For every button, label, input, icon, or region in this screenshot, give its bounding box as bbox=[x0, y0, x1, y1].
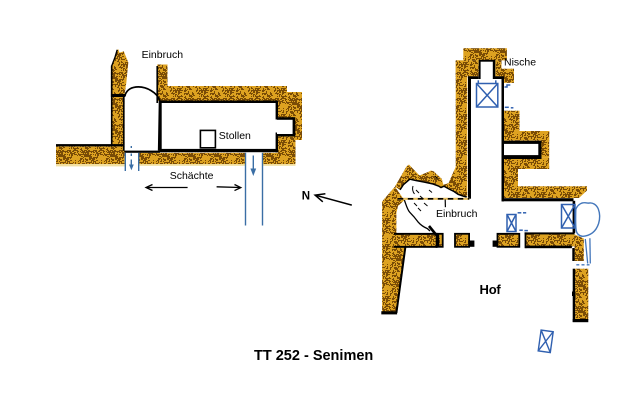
svg-text:TT 252 - Senimen: TT 252 - Senimen bbox=[254, 348, 373, 364]
svg-text:Hof: Hof bbox=[480, 282, 502, 297]
svg-text:N: N bbox=[302, 191, 310, 203]
svg-text:Einbruch: Einbruch bbox=[142, 49, 184, 61]
svg-text:Nische: Nische bbox=[504, 57, 536, 69]
svg-text:Einbruch: Einbruch bbox=[436, 208, 478, 220]
svg-text:Schächte: Schächte bbox=[170, 170, 214, 182]
svg-text:Stollen: Stollen bbox=[219, 130, 251, 142]
